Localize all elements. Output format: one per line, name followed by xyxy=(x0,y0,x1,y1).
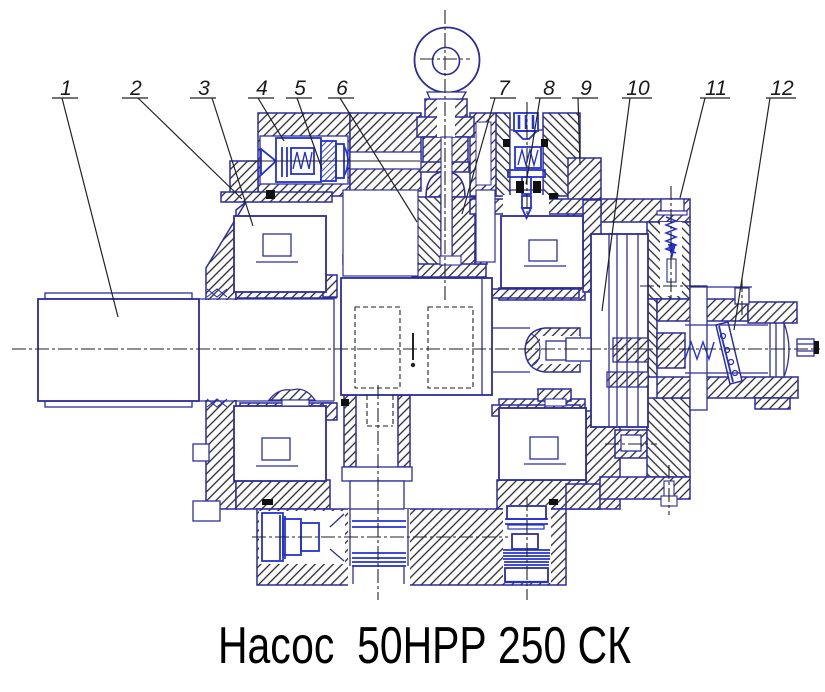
svg-text:Насос 50НРР 250 СК: Насос 50НРР 250 СК xyxy=(218,617,631,675)
svg-text:6: 6 xyxy=(336,77,348,100)
svg-text:1: 1 xyxy=(60,77,72,100)
svg-text:5: 5 xyxy=(294,77,306,100)
svg-text:8: 8 xyxy=(543,77,555,100)
svg-text:12: 12 xyxy=(770,77,794,100)
svg-text:2: 2 xyxy=(129,77,142,100)
svg-text:3: 3 xyxy=(198,77,210,100)
svg-text:4: 4 xyxy=(256,77,268,100)
svg-text:10: 10 xyxy=(626,77,650,100)
svg-text:11: 11 xyxy=(705,77,727,100)
svg-text:9: 9 xyxy=(580,77,592,100)
svg-text:7: 7 xyxy=(498,77,511,100)
